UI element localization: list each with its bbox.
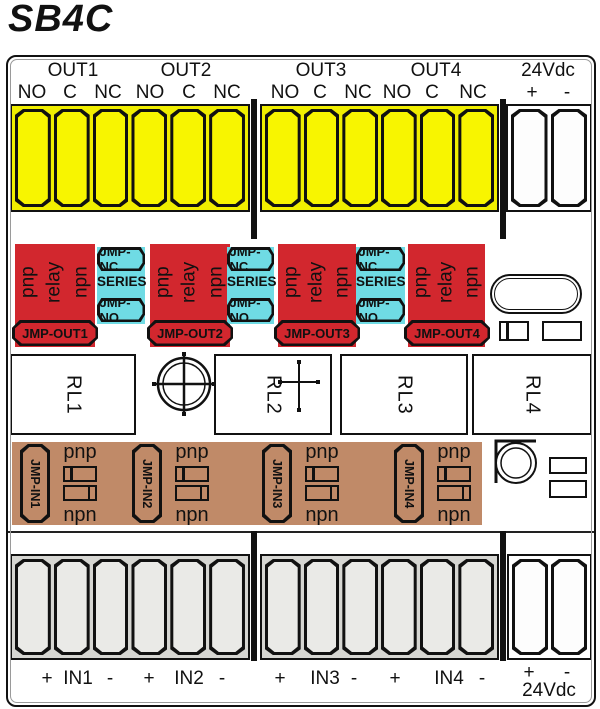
terminal-cell — [54, 109, 90, 207]
jmp-in3-jumper: JMP-IN3 — [262, 444, 292, 523]
relay-label: relay — [303, 246, 330, 318]
in1-label: IN1 — [63, 669, 93, 690]
jmp-out2-jumper: JMP-OUT2 — [147, 320, 233, 346]
pnp-label: pnp — [175, 442, 208, 462]
npn-label: npn — [68, 246, 95, 318]
in4-pnp-npn-selector: pnp npn — [432, 442, 476, 525]
terminal-cell — [551, 559, 587, 655]
small-rect — [549, 457, 587, 474]
pnp-label: pnp — [150, 246, 177, 318]
pin-label: NC — [344, 83, 371, 104]
module-outline: OUT1 OUT2 OUT3 OUT4 24Vdc NO C NC NO C N… — [6, 55, 596, 707]
terminal-cell — [458, 559, 494, 655]
npn-label: npn — [459, 246, 486, 318]
terminal-cell — [420, 559, 456, 655]
jumper-position-pnp — [305, 466, 339, 482]
terminal-cell — [511, 109, 548, 207]
jumper-position-pnp — [63, 466, 97, 482]
jmp-out3-jumper: JMP-OUT3 — [274, 320, 360, 346]
jmp-out1-jumper: JMP-OUT1 — [12, 320, 98, 346]
in2-pnp-npn-selector: pnp npn — [170, 442, 214, 525]
jumper-position-npn — [63, 485, 97, 501]
terminal-cell — [512, 559, 548, 655]
npn-label: npn — [305, 505, 338, 525]
pin-label: + — [143, 669, 154, 690]
top-24vdc-terminal-strip — [506, 104, 592, 212]
in1-pnp-npn-selector: pnp npn — [58, 442, 102, 525]
pin-label: + — [389, 669, 400, 690]
pin-label: NC — [213, 83, 240, 104]
strip-divider — [251, 531, 257, 661]
top-24vdc-label: 24Vdc — [521, 61, 575, 82]
potentiometer-icon — [490, 437, 542, 489]
out4-label: OUT4 — [411, 61, 462, 82]
jmp-in1-jumper: JMP-IN1 — [20, 444, 50, 523]
npn-label: npn — [203, 246, 230, 318]
pin-label: + — [526, 83, 537, 104]
in2-label: IN2 — [174, 669, 204, 690]
terminal-cell — [304, 109, 340, 207]
small-jumper-rect — [499, 321, 529, 341]
bottom-24vdc-label: 24Vdc — [522, 681, 576, 702]
pin-label: NO — [271, 83, 300, 104]
npn-label: npn — [329, 246, 356, 318]
pnp-label: pnp — [63, 442, 96, 462]
series-label: SERIES — [227, 274, 274, 289]
pin-label: C — [425, 83, 439, 104]
npn-label: npn — [437, 505, 470, 525]
relay-label: relay — [176, 246, 203, 318]
pnp-label: pnp — [15, 246, 42, 318]
terminal-cell — [93, 109, 129, 207]
jumper-position-pnp — [175, 466, 209, 482]
section-divider — [8, 531, 594, 533]
cross-mark-icon — [277, 360, 321, 412]
oval-cutout — [490, 274, 582, 314]
small-rect — [549, 480, 587, 498]
terminal-cell — [15, 109, 51, 207]
jmp-in2-jumper: JMP-IN2 — [132, 444, 162, 523]
relay-rl3: RL3 — [340, 354, 468, 435]
jmp-no-jumper: JMP-NO — [227, 298, 274, 322]
terminal-cell — [381, 559, 417, 655]
in4-label: IN4 — [434, 669, 464, 690]
terminal-cell — [209, 559, 245, 655]
pin-label: - — [107, 669, 113, 690]
jmp-nc-jumper: JMP-NC — [97, 247, 145, 271]
jumper-position-npn — [437, 485, 471, 501]
relay-label: relay — [41, 246, 68, 318]
out2-label: OUT2 — [161, 61, 212, 82]
jmp-in4-jumper: JMP-IN4 — [394, 444, 424, 523]
pin-label: - — [564, 83, 570, 104]
pin-label: NC — [94, 83, 121, 104]
terminal-cell — [131, 109, 167, 207]
jmp-out4-jumper: JMP-OUT4 — [404, 320, 490, 346]
pin-label: NC — [459, 83, 486, 104]
terminal-cell — [342, 559, 378, 655]
pnp-label: pnp — [408, 246, 435, 318]
pin-label: C — [63, 83, 77, 104]
terminal-cell — [265, 109, 301, 207]
relay-rl1: RL1 — [10, 354, 136, 435]
pin-label: + — [41, 669, 52, 690]
terminal-cell — [420, 109, 456, 207]
small-rect — [542, 321, 582, 341]
out1-label: OUT1 — [48, 61, 99, 82]
jmp-no-jumper: JMP-NO — [356, 298, 405, 322]
pin-label: - — [351, 669, 357, 690]
terminal-cell — [170, 559, 206, 655]
series-block-1: JMP-NC SERIES JMP-NO — [97, 247, 145, 324]
pin-label: NO — [383, 83, 412, 104]
terminal-cell — [381, 109, 417, 207]
pnp-label: pnp — [305, 442, 338, 462]
series-block-2: JMP-NC SERIES JMP-NO — [227, 247, 274, 324]
out3-label: OUT3 — [296, 61, 347, 82]
jumper-position-npn — [305, 485, 339, 501]
npn-label: npn — [175, 505, 208, 525]
out12-terminal-strip — [10, 104, 250, 212]
series-block-3: JMP-NC SERIES JMP-NO — [356, 247, 405, 324]
jmp-no-jumper: JMP-NO — [97, 298, 145, 322]
terminal-cell — [265, 559, 301, 655]
page-title: SB4C — [8, 0, 113, 41]
terminal-cell — [54, 559, 90, 655]
terminal-cell — [458, 109, 494, 207]
jumper-position-pnp — [437, 466, 471, 482]
pin-label: + — [274, 669, 285, 690]
terminal-cell — [304, 559, 340, 655]
pin-label: - — [219, 669, 225, 690]
board-diagram: SB4C OUT1 OUT2 OUT3 OUT4 24Vdc NO C NC N… — [0, 0, 600, 709]
strip-divider — [500, 531, 506, 661]
in12-terminal-strip — [10, 554, 250, 660]
relay-label: relay — [433, 246, 460, 318]
terminal-cell — [551, 109, 588, 207]
pnp-label: pnp — [278, 246, 305, 318]
terminal-cell — [93, 559, 129, 655]
terminal-cell — [209, 109, 245, 207]
pin-label: NO — [136, 83, 165, 104]
terminal-cell — [170, 109, 206, 207]
strip-divider — [251, 99, 257, 239]
jumper-position-npn — [175, 485, 209, 501]
terminal-cell — [342, 109, 378, 207]
strip-divider — [500, 99, 506, 239]
bottom-24vdc-terminal-strip — [507, 554, 592, 660]
in3-label: IN3 — [310, 669, 340, 690]
pnp-label: pnp — [437, 442, 470, 462]
pin-label: C — [182, 83, 196, 104]
relay-rl4: RL4 — [472, 354, 592, 435]
terminal-cell — [131, 559, 167, 655]
out34-terminal-strip — [260, 104, 499, 212]
in3-pnp-npn-selector: pnp npn — [300, 442, 344, 525]
pin-label: C — [313, 83, 327, 104]
jmp-nc-jumper: JMP-NC — [356, 247, 405, 271]
series-label: SERIES — [97, 274, 145, 289]
screw-icon — [152, 352, 216, 416]
pin-label: - — [479, 669, 485, 690]
series-label: SERIES — [356, 274, 405, 289]
in34-terminal-strip — [260, 554, 499, 660]
pin-label: NO — [18, 83, 47, 104]
jmp-nc-jumper: JMP-NC — [227, 247, 274, 271]
terminal-cell — [15, 559, 51, 655]
npn-label: npn — [63, 505, 96, 525]
